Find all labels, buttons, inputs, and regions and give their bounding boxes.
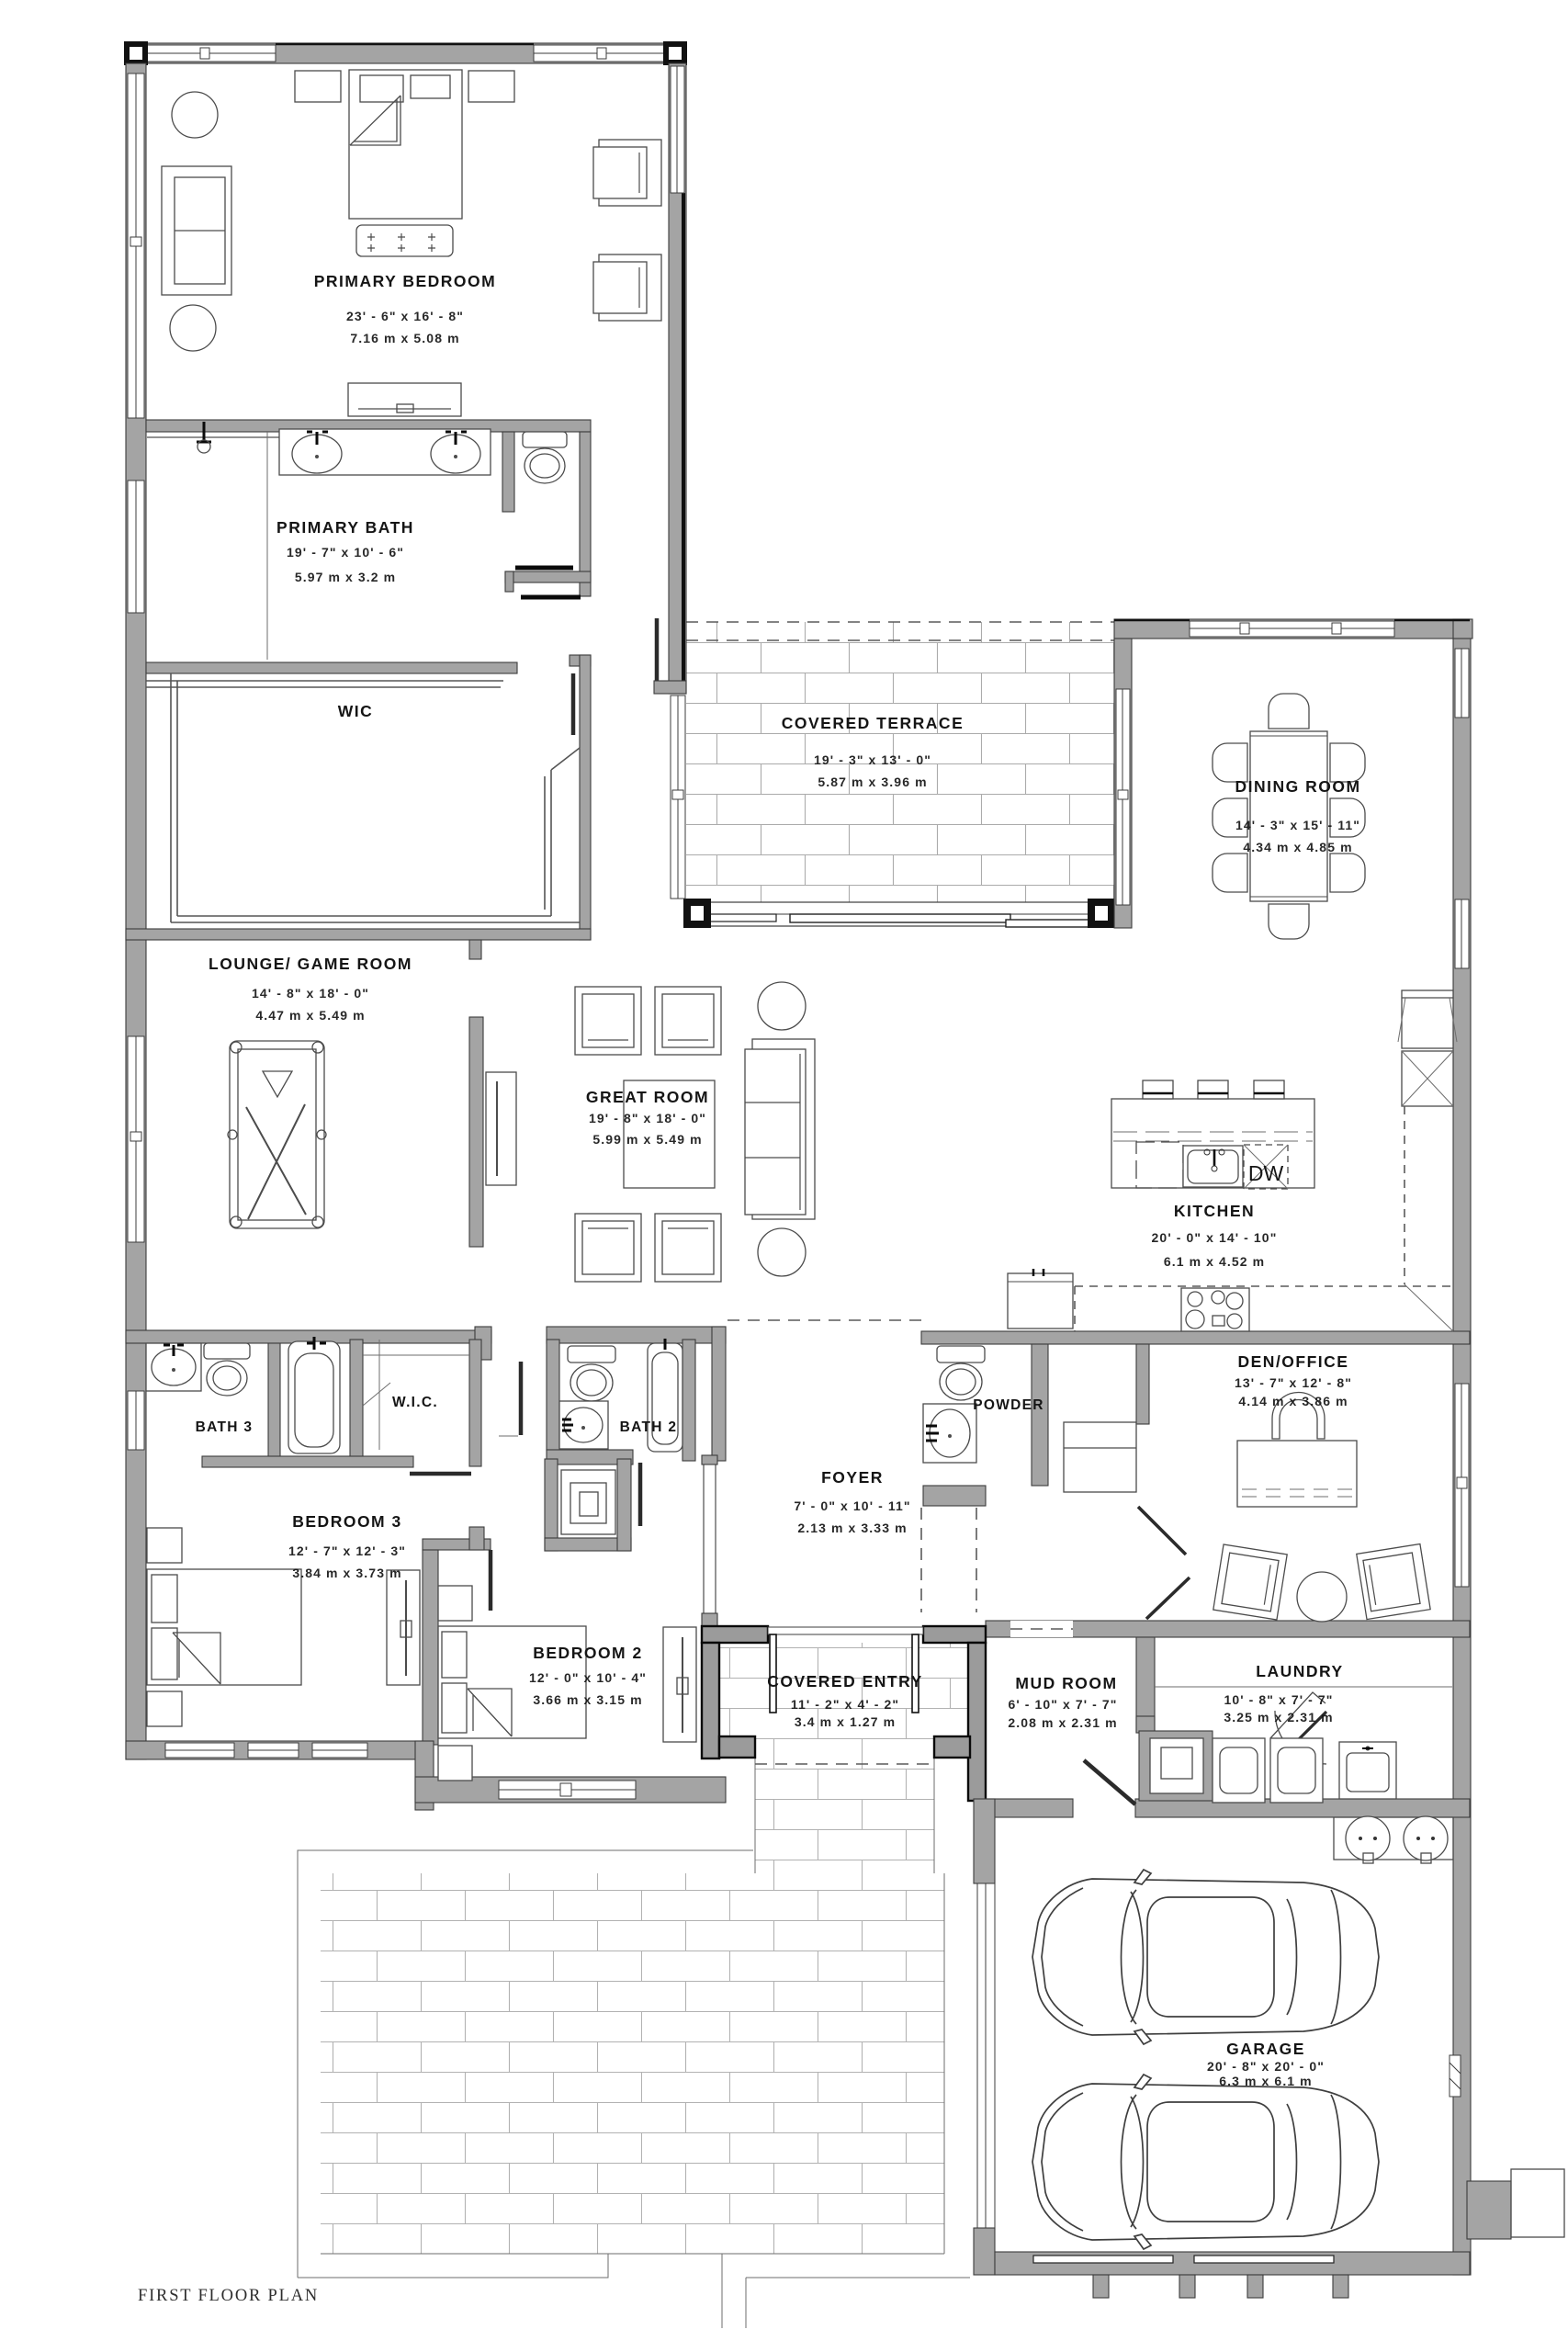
- svg-text:BATH 3: BATH 3: [196, 1419, 254, 1435]
- svg-text:W.I.C.: W.I.C.: [392, 1395, 438, 1410]
- svg-text:DW: DW: [1248, 1161, 1284, 1185]
- svg-text:POWDER: POWDER: [973, 1397, 1044, 1413]
- svg-text:COVERED TERRACE: COVERED TERRACE: [782, 714, 964, 732]
- svg-text:WIC: WIC: [338, 702, 374, 720]
- svg-text:3.25 m x 2.31 m: 3.25 m x 2.31 m: [1224, 1710, 1333, 1724]
- svg-text:4.34 m x 4.85 m: 4.34 m x 4.85 m: [1243, 840, 1352, 854]
- svg-text:6.3 m x 6.1 m: 6.3 m x 6.1 m: [1219, 2074, 1312, 2088]
- svg-text:5.99 m x 5.49 m: 5.99 m x 5.49 m: [592, 1132, 702, 1147]
- svg-text:14' - 3" x 15' - 11": 14' - 3" x 15' - 11": [1235, 818, 1360, 832]
- svg-text:BEDROOM 3: BEDROOM 3: [292, 1512, 401, 1531]
- svg-text:2.08 m x 2.31 m: 2.08 m x 2.31 m: [1008, 1715, 1117, 1730]
- svg-text:7' - 0" x 10' - 11": 7' - 0" x 10' - 11": [794, 1498, 910, 1513]
- svg-text:GREAT ROOM: GREAT ROOM: [586, 1088, 709, 1106]
- svg-text:3.66 m x 3.15 m: 3.66 m x 3.15 m: [533, 1692, 642, 1707]
- svg-text:FOYER: FOYER: [821, 1468, 884, 1487]
- svg-text:14' - 8" x 18' - 0": 14' - 8" x 18' - 0": [252, 986, 369, 1001]
- svg-text:12' - 0" x 10' - 4": 12' - 0" x 10' - 4": [529, 1670, 647, 1685]
- svg-text:2.13 m x 3.33 m: 2.13 m x 3.33 m: [797, 1521, 907, 1535]
- svg-text:4.47 m x 5.49 m: 4.47 m x 5.49 m: [255, 1008, 365, 1023]
- svg-text:3.84 m x 3.73 m: 3.84 m x 3.73 m: [292, 1566, 401, 1580]
- svg-text:5.97 m x 3.2 m: 5.97 m x 3.2 m: [295, 570, 396, 584]
- svg-text:5.87 m x 3.96 m: 5.87 m x 3.96 m: [818, 775, 927, 789]
- svg-text:6.1 m x 4.52 m: 6.1 m x 4.52 m: [1164, 1254, 1265, 1269]
- svg-text:19' - 3" x 13' - 0": 19' - 3" x 13' - 0": [814, 752, 931, 767]
- svg-text:LOUNGE/ GAME ROOM: LOUNGE/ GAME ROOM: [209, 955, 412, 973]
- svg-text:DEN/OFFICE: DEN/OFFICE: [1238, 1352, 1349, 1371]
- svg-text:19' - 7" x 10' - 6": 19' - 7" x 10' - 6": [287, 545, 404, 560]
- svg-text:BEDROOM 2: BEDROOM 2: [533, 1644, 642, 1662]
- svg-text:4.14 m x 3.86 m: 4.14 m x 3.86 m: [1238, 1394, 1348, 1408]
- svg-text:3.4 m x 1.27 m: 3.4 m x 1.27 m: [795, 1714, 896, 1729]
- svg-text:7.16 m x 5.08 m: 7.16 m x 5.08 m: [350, 331, 459, 345]
- svg-text:LAUNDRY: LAUNDRY: [1256, 1662, 1343, 1680]
- svg-text:FIRST FLOOR PLAN: FIRST FLOOR PLAN: [138, 2287, 319, 2305]
- svg-text:23' - 6" x 16' - 8": 23' - 6" x 16' - 8": [346, 309, 464, 323]
- svg-text:PRIMARY BEDROOM: PRIMARY BEDROOM: [314, 272, 496, 290]
- svg-text:11' - 2" x 4' - 2": 11' - 2" x 4' - 2": [791, 1697, 899, 1712]
- svg-text:BATH 2: BATH 2: [620, 1419, 678, 1435]
- svg-text:20' - 0" x 14' - 10": 20' - 0" x 14' - 10": [1152, 1230, 1278, 1245]
- svg-text:6' - 10" x 7' - 7": 6' - 10" x 7' - 7": [1008, 1697, 1117, 1712]
- svg-text:PRIMARY BATH: PRIMARY BATH: [276, 518, 414, 537]
- svg-text:19' - 8" x 18' - 0": 19' - 8" x 18' - 0": [589, 1111, 706, 1125]
- svg-text:DINING ROOM: DINING ROOM: [1235, 777, 1360, 796]
- svg-text:MUD ROOM: MUD ROOM: [1015, 1674, 1117, 1692]
- svg-text:13' - 7" x 12' - 8": 13' - 7" x 12' - 8": [1235, 1375, 1352, 1390]
- svg-text:12' - 7" x 12' - 3": 12' - 7" x 12' - 3": [288, 1543, 406, 1558]
- svg-text:20' - 8" x 20' - 0": 20' - 8" x 20' - 0": [1207, 2059, 1325, 2074]
- svg-text:10' - 8" x 7' - 7": 10' - 8" x 7' - 7": [1224, 1692, 1333, 1707]
- svg-text:GARAGE: GARAGE: [1226, 2040, 1305, 2058]
- svg-text:COVERED ENTRY: COVERED ENTRY: [767, 1672, 923, 1690]
- svg-text:KITCHEN: KITCHEN: [1174, 1202, 1255, 1220]
